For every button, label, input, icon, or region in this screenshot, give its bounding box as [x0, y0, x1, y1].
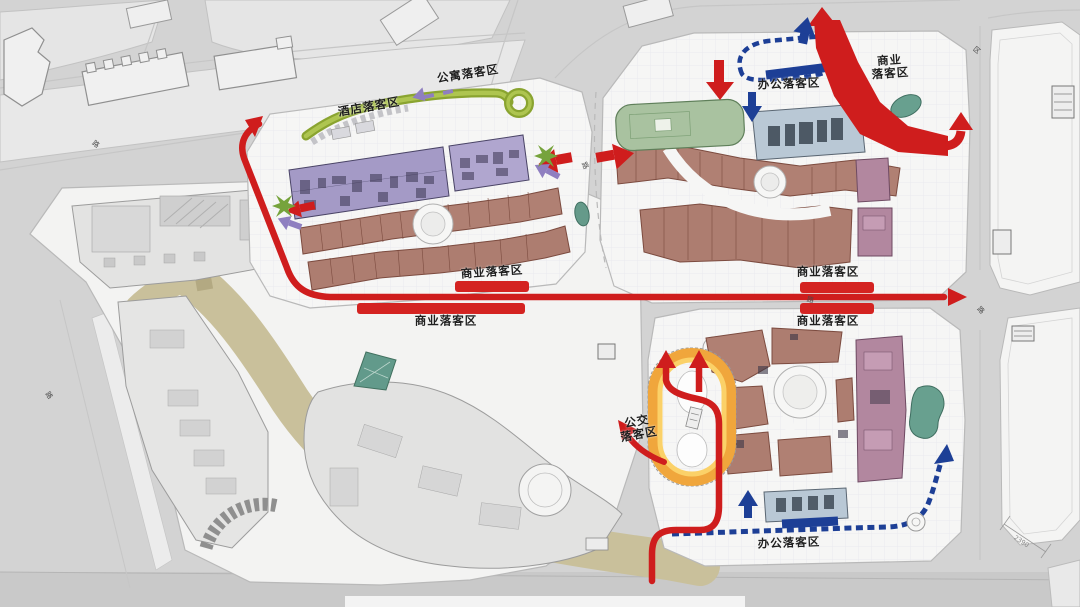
zone-label-commercial-dropoff-w-lower: 商业落客区 [415, 315, 478, 328]
zone-label-commercial-dropoff-e-upper: 商业落客区 [797, 266, 860, 279]
context-building [993, 230, 1011, 254]
anchor-mauve-south [856, 336, 906, 482]
zone-label-office-dropoff-south: 办公落客区 [758, 535, 821, 550]
context-building [1012, 326, 1034, 341]
zone-label-commercial-dropoff-ne: 商业 落客区 [870, 53, 909, 81]
zone-label-office-dropoff-north: 办公落客区 [758, 76, 821, 91]
red-arrow-up-stub [816, 24, 829, 38]
plan-canvas [0, 0, 1080, 607]
context-building [1052, 86, 1074, 118]
south-white-strip [345, 596, 745, 607]
east-parcel-south [1000, 308, 1080, 545]
context-parcel [1048, 560, 1080, 607]
zone-label-line: 落客区 [871, 66, 909, 81]
green-building [615, 99, 745, 152]
roundabout-south [907, 513, 925, 531]
zone-label-commercial-dropoff-e-lower: 商业落客区 [797, 315, 860, 328]
site-circulation-plan: 公寓落客区 酒店落客区 办公落客区 商业 落客区 商业落客区 商业落客区 商业落… [0, 0, 1080, 607]
northwest-parcel [247, 78, 592, 308]
mall-core [598, 344, 615, 359]
